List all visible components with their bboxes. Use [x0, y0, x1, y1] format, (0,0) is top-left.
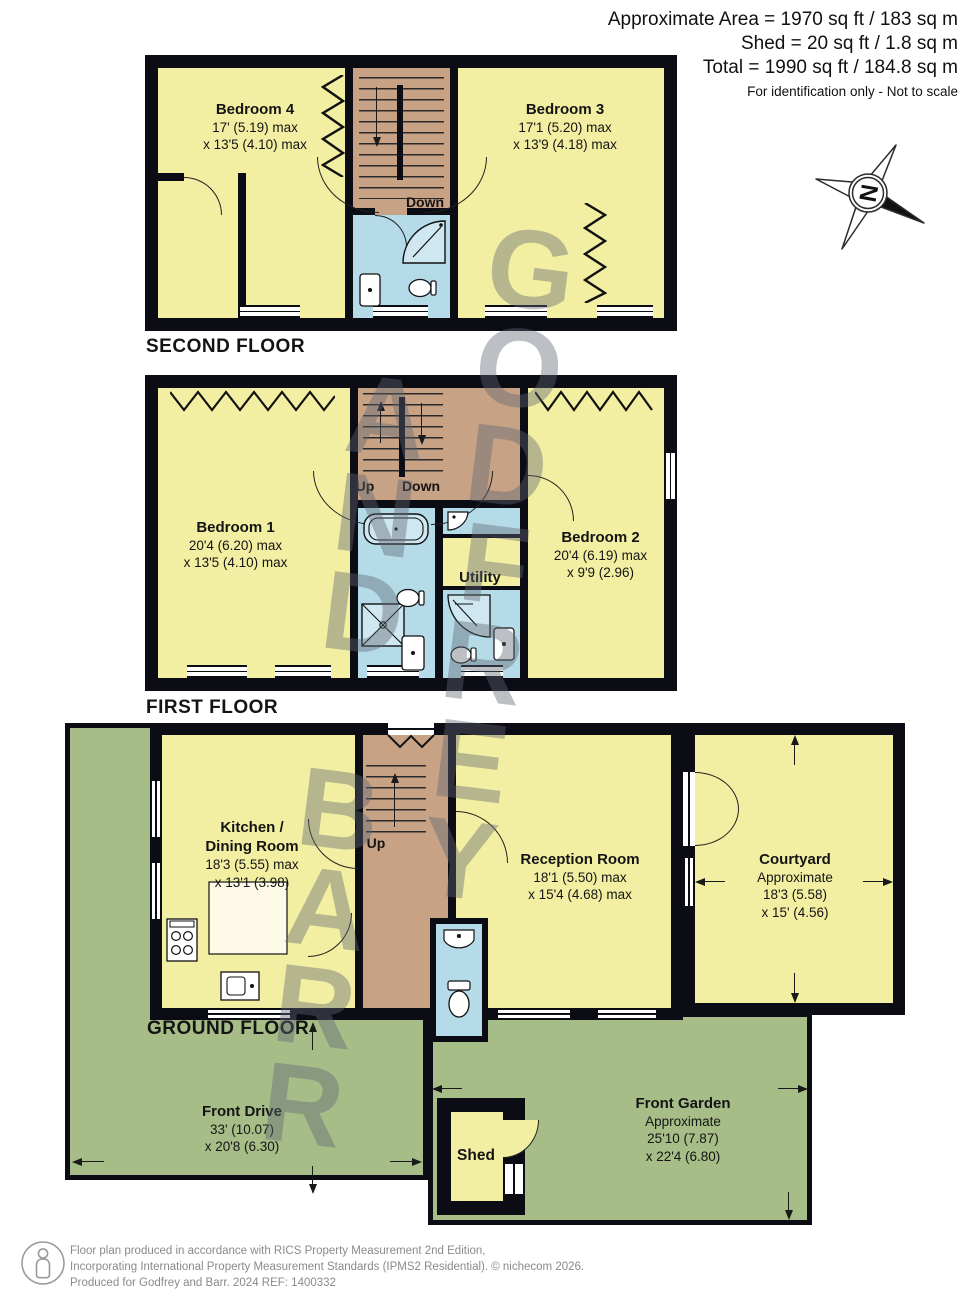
room-dim: 17' (5.19) max: [165, 119, 345, 136]
identification-note: For identification only - Not to scale: [608, 82, 958, 102]
area-summary: Approximate Area = 1970 sq ft / 183 sq m…: [608, 8, 958, 102]
area-name: Front Garden: [593, 1094, 773, 1113]
area-name: Front Drive: [152, 1102, 332, 1121]
dimension-arrow-left: [74, 1161, 104, 1162]
window: [150, 781, 162, 837]
room-name: Bedroom 3: [475, 100, 655, 119]
corner-shower-icon: [447, 594, 491, 638]
corner-sink-icon: [447, 511, 469, 531]
shower-icon: [401, 219, 447, 265]
toilet-icon: [407, 277, 437, 299]
window: [187, 665, 247, 678]
courtyard-label: Courtyard Approximate 18'3 (5.58) x 15' …: [705, 850, 885, 921]
shed-window: [503, 1164, 525, 1194]
shed-area-line: Shed = 20 sq ft / 1.8 sq m: [608, 32, 958, 56]
wall: [158, 173, 184, 181]
second-floor-label: SECOND FLOOR: [146, 336, 305, 358]
room-dim: x 15'4 (4.68) max: [485, 886, 675, 903]
window: [275, 665, 331, 678]
window: [683, 858, 695, 906]
room-name: Kitchen /: [162, 818, 342, 837]
bedroom3-label: Bedroom 3 17'1 (5.20) max x 13'9 (4.18) …: [475, 100, 655, 154]
total-area-line: Total = 1990 sq ft / 184.8 sq m: [608, 56, 958, 80]
ground-wc: [430, 918, 488, 1042]
stair-direction-arrow: [376, 87, 377, 145]
dimension-arrow-right: [390, 1161, 420, 1162]
window: [485, 305, 547, 318]
wardrobe-zigzag: [170, 390, 335, 412]
area-dim: 25'10 (7.87): [593, 1130, 773, 1147]
room-name: Bedroom 4: [165, 100, 345, 119]
stove-icon: [166, 918, 198, 962]
front-drive-label: Front Drive 33' (10.07) x 20'8 (6.30): [152, 1102, 332, 1156]
stairs-down-label: Down: [390, 194, 460, 210]
front-garden-label: Front Garden Approximate 25'10 (7.87) x …: [593, 1094, 773, 1165]
shower-icon: [361, 603, 405, 647]
approximate-area-line: Approximate Area = 1970 sq ft / 183 sq m: [608, 8, 958, 32]
room-dim: x 13'1 (3.98): [162, 874, 342, 891]
bath-icon: [363, 513, 429, 545]
dimension-arrow-right: [778, 1088, 806, 1089]
sink-icon: [359, 273, 381, 307]
stairs-up-label: Up: [345, 478, 385, 494]
bedroom1-label: Bedroom 1 20'4 (6.20) max x 13'5 (4.10) …: [143, 518, 328, 572]
wc-sink-icon: [442, 928, 476, 954]
kitchen-label: Kitchen / Dining Room 18'3 (5.55) max x …: [162, 818, 342, 891]
area-dim: x 20'8 (6.30): [152, 1138, 332, 1155]
dimension-arrow-up: [312, 1024, 313, 1050]
room-dim: x 13'9 (4.18) max: [475, 136, 655, 153]
stair-direction-arrow: [394, 775, 395, 827]
wall: [443, 534, 520, 538]
window: [664, 453, 677, 499]
second-floor-plan: Down: [145, 55, 677, 331]
dimension-arrow-down: [794, 973, 795, 1001]
room-dim: 20'4 (6.20) max: [143, 537, 328, 554]
wall: [355, 735, 363, 1008]
stair-direction-arrow: [380, 403, 381, 443]
shed-label: Shed: [441, 1146, 511, 1166]
window: [373, 305, 428, 318]
wc-toilet-icon: [444, 980, 474, 1020]
bedroom2-label: Bedroom 2 20'4 (6.19) max x 9'9 (2.96): [513, 528, 688, 582]
reception-label: Reception Room 18'1 (5.50) max x 15'4 (4…: [485, 850, 675, 904]
ground-floor-label: GROUND FLOOR: [147, 1018, 309, 1040]
room-dim: 20'4 (6.19) max: [513, 547, 688, 564]
wall: [345, 215, 353, 318]
room-dim: x 9'9 (2.96): [513, 564, 688, 581]
window: [240, 305, 300, 318]
wall: [238, 173, 246, 318]
room-dim: 18'3 (5.58): [705, 886, 885, 903]
window: [598, 1008, 656, 1020]
utility-label: Utility: [430, 568, 530, 587]
footer-line-1: Floor plan produced in accordance with R…: [70, 1243, 584, 1259]
room-dim: 18'3 (5.55) max: [162, 856, 342, 873]
wardrobe-zigzag: [535, 390, 655, 412]
wall: [435, 500, 443, 678]
footer-disclaimer: Floor plan produced in accordance with R…: [70, 1243, 584, 1291]
stair-direction-arrow: [421, 403, 422, 443]
area-dim: 33' (10.07): [152, 1121, 332, 1138]
window: [150, 863, 162, 919]
dimension-arrow-down: [312, 1166, 313, 1192]
room-dim: x 15' (4.56): [705, 904, 885, 921]
footer-line-2: Incorporating International Property Mea…: [70, 1259, 584, 1275]
wardrobe-zigzag: [583, 203, 607, 303]
room-dim: 18'1 (5.50) max: [485, 869, 675, 886]
kitchen-sink-icon: [220, 971, 260, 1001]
toilet-icon: [449, 645, 477, 665]
dimension-arrow-up: [794, 737, 795, 765]
stairs-up-label: Up: [356, 835, 396, 851]
room-dim: x 13'5 (4.10) max: [165, 136, 345, 153]
front-door-icon: [386, 733, 436, 749]
first-floor-label: FIRST FLOOR: [146, 697, 278, 719]
room-approx: Approximate: [705, 869, 885, 886]
window: [597, 305, 653, 318]
stairs-down-label: Down: [393, 478, 449, 494]
wall: [450, 215, 458, 318]
floorplan-page: Approximate Area = 1970 sq ft / 183 sq m…: [0, 0, 980, 1314]
sink-icon: [401, 635, 425, 671]
room-name: Bedroom 2: [513, 528, 688, 547]
french-door-opening: [683, 772, 695, 846]
room-name: Bedroom 1: [143, 518, 328, 537]
compass-rose-icon: N: [812, 142, 930, 252]
room-name: Dining Room: [162, 837, 342, 856]
bedroom4-label: Bedroom 4 17' (5.19) max x 13'5 (4.10) m…: [165, 100, 345, 154]
room-dim: x 13'5 (4.10) max: [143, 554, 328, 571]
area-dim: x 22'4 (6.80): [593, 1148, 773, 1165]
wall: [350, 388, 358, 678]
footer-line-3: Produced for Godfrey and Barr. 2024 REF:…: [70, 1275, 584, 1291]
stair-rail: [399, 397, 405, 477]
dimension-arrow-down: [788, 1192, 789, 1218]
wall: [345, 68, 353, 170]
kitchen-island-icon: [208, 881, 288, 955]
nichecom-person-logo-icon: [20, 1240, 66, 1286]
dimension-arrow-left: [434, 1088, 462, 1089]
window: [498, 1008, 570, 1020]
area-approx: Approximate: [593, 1113, 773, 1130]
sink-icon: [493, 627, 515, 661]
stair-rail: [397, 85, 403, 180]
wall: [450, 68, 458, 170]
room-dim: 17'1 (5.20) max: [475, 119, 655, 136]
toilet-icon: [395, 587, 425, 609]
room-name: Courtyard: [705, 850, 885, 869]
window: [461, 665, 503, 678]
room-name: Reception Room: [485, 850, 675, 869]
